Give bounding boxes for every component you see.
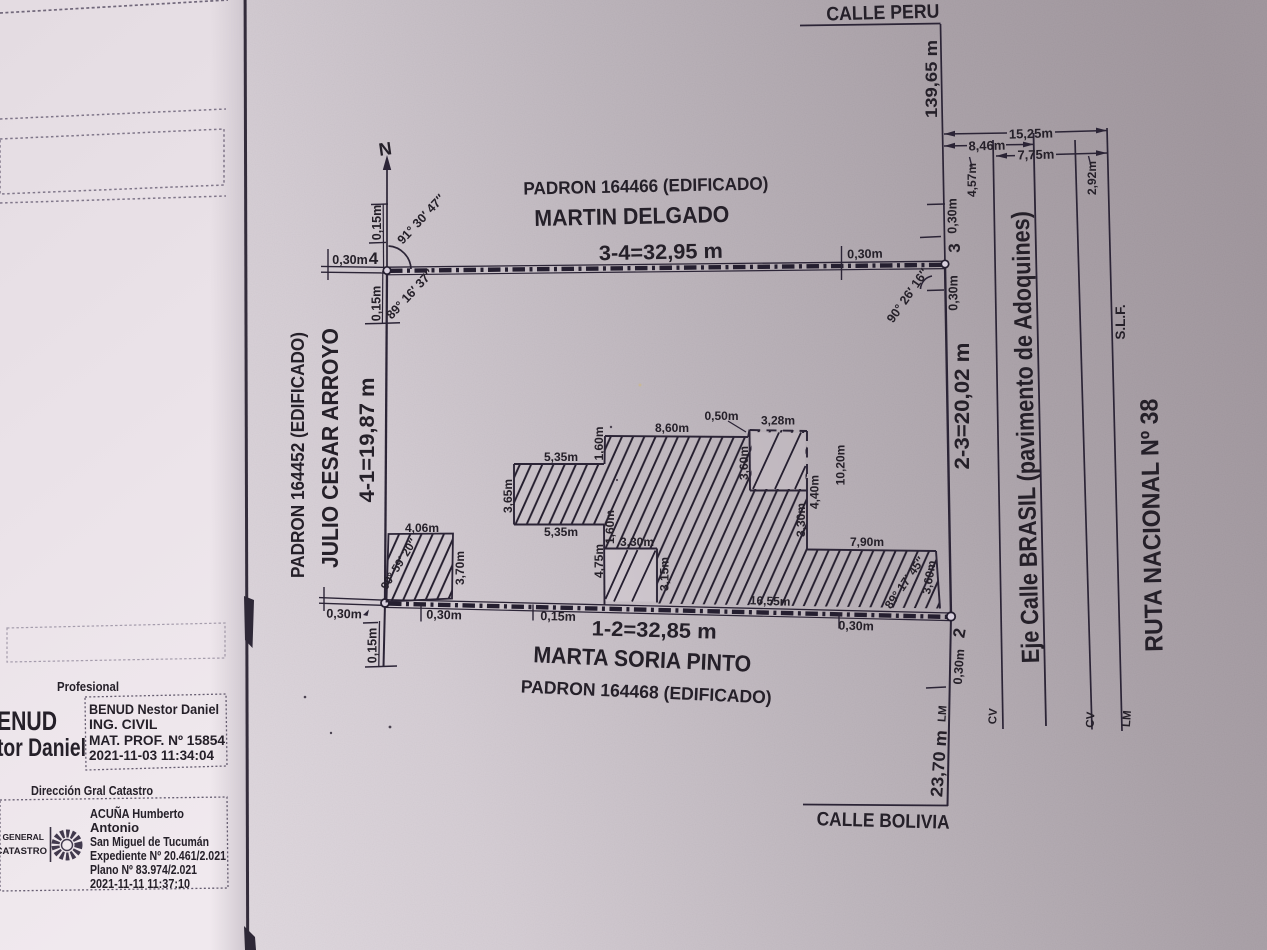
svg-text:16,55m: 16,55m <box>750 593 791 608</box>
svg-text:PADRON 164452 (EDIFICADO): PADRON 164452 (EDIFICADO) <box>288 332 308 578</box>
svg-text:ENUD: ENUD <box>0 706 57 736</box>
svg-text:0,50m: 0,50m <box>704 409 738 423</box>
svg-text:0,30m: 0,30m <box>946 198 960 233</box>
svg-text:RUTA NACIONAL Nº 38: RUTA NACIONAL Nº 38 <box>1135 398 1168 652</box>
svg-text:Plano Nº 83.974/2.021: Plano Nº 83.974/2.021 <box>90 862 197 877</box>
svg-text:CV: CV <box>987 708 1000 725</box>
svg-text:7,90m: 7,90m <box>850 535 884 549</box>
svg-text:7,75m: 7,75m <box>1017 147 1054 163</box>
svg-text:3,65m: 3,65m <box>501 479 515 513</box>
svg-text:1,60m: 1,60m <box>603 510 617 544</box>
svg-text:tor Daniel: tor Daniel <box>0 734 86 762</box>
svg-text:ING. CIVIL: ING. CIVIL <box>89 716 158 732</box>
svg-text:3,28m: 3,28m <box>761 414 795 428</box>
svg-text:8,60m: 8,60m <box>655 421 689 435</box>
svg-text:N: N <box>377 138 393 160</box>
svg-text:10,20m: 10,20m <box>834 445 848 486</box>
svg-text:4,06m: 4,06m <box>405 521 439 535</box>
svg-text:5,35m: 5,35m <box>544 450 578 464</box>
svg-text:Expediente Nº 20.461/2.021: Expediente Nº 20.461/2.021 <box>90 848 226 863</box>
svg-text:0,15m: 0,15m <box>370 286 384 321</box>
svg-text:Dirección Gral Catastro: Dirección Gral Catastro <box>31 784 153 798</box>
svg-text:ÓN GENERAL: ÓN GENERAL <box>0 831 44 842</box>
svg-text:MARTIN DELGADO: MARTIN DELGADO <box>534 201 730 231</box>
svg-text:CV: CV <box>1084 711 1097 728</box>
svg-text:4-1=19,87 m: 4-1=19,87 m <box>356 378 379 503</box>
svg-text:0,30m: 0,30m <box>847 247 883 262</box>
svg-text:0,30m: 0,30m <box>332 253 367 267</box>
svg-text:BENUD Nestor Daniel: BENUD Nestor Daniel <box>89 701 219 717</box>
svg-text:139,65 m: 139,65 m <box>922 40 941 118</box>
svg-text:MAT. PROF. Nº 15854: MAT. PROF. Nº 15854 <box>89 732 225 748</box>
svg-text:JULIO CESAR ARROYO: JULIO CESAR ARROYO <box>317 328 343 568</box>
svg-text:0,30m: 0,30m <box>326 607 362 622</box>
svg-text:0,15m: 0,15m <box>370 205 384 240</box>
svg-text:4,75m: 4,75m <box>592 544 606 578</box>
svg-text:LM: LM <box>936 705 949 722</box>
svg-text:S.L.F.: S.L.F. <box>1113 304 1128 339</box>
svg-text:San Miguel de Tucumán: San Miguel de Tucumán <box>90 834 209 849</box>
svg-text:3,30m: 3,30m <box>794 503 808 537</box>
svg-text:3-4=32,95 m: 3-4=32,95 m <box>599 240 723 266</box>
svg-text:CALLE BOLIVIA: CALLE BOLIVIA <box>816 808 950 833</box>
svg-text:ACUÑA Humberto: ACUÑA Humberto <box>90 806 184 821</box>
svg-text:1,60m: 1,60m <box>592 426 606 460</box>
svg-text:4,40m: 4,40m <box>808 475 822 509</box>
svg-text:CALLE PERU: CALLE PERU <box>826 1 940 26</box>
svg-text:0,30m: 0,30m <box>838 619 874 634</box>
svg-text:2,92m: 2,92m <box>1085 161 1099 195</box>
svg-text:3,15m: 3,15m <box>658 557 672 591</box>
svg-text:0,15m: 0,15m <box>366 628 380 663</box>
svg-text:2021-11-03 11:34:04: 2021-11-03 11:34:04 <box>89 747 214 763</box>
svg-text:2021-11-11 11:37:10: 2021-11-11 11:37:10 <box>90 876 190 891</box>
svg-text:5,35m: 5,35m <box>544 525 578 539</box>
svg-text:LM: LM <box>1121 710 1134 727</box>
svg-text:8,46m: 8,46m <box>968 138 1005 154</box>
svg-text:3,60m: 3,60m <box>737 446 751 480</box>
svg-text:3,30m: 3,30m <box>620 535 654 549</box>
svg-text:0,30m: 0,30m <box>951 649 967 685</box>
svg-text:0,30m: 0,30m <box>947 275 961 310</box>
svg-text:0,15m: 0,15m <box>540 609 576 624</box>
svg-text:1-2=32,85 m: 1-2=32,85 m <box>591 617 717 643</box>
svg-text:2-3=20,02 m: 2-3=20,02 m <box>951 343 974 470</box>
svg-text:3: 3 <box>945 243 964 252</box>
svg-text:CATASTRO: CATASTRO <box>0 846 47 857</box>
svg-text:4,57m: 4,57m <box>965 163 979 197</box>
svg-text:Profesional: Profesional <box>57 680 119 694</box>
svg-text:3,70m: 3,70m <box>453 551 467 585</box>
svg-text:4: 4 <box>369 249 379 268</box>
svg-text:Antonio: Antonio <box>90 820 139 835</box>
svg-text:15,25m: 15,25m <box>1009 125 1053 141</box>
svg-text:0,30m: 0,30m <box>426 608 462 623</box>
